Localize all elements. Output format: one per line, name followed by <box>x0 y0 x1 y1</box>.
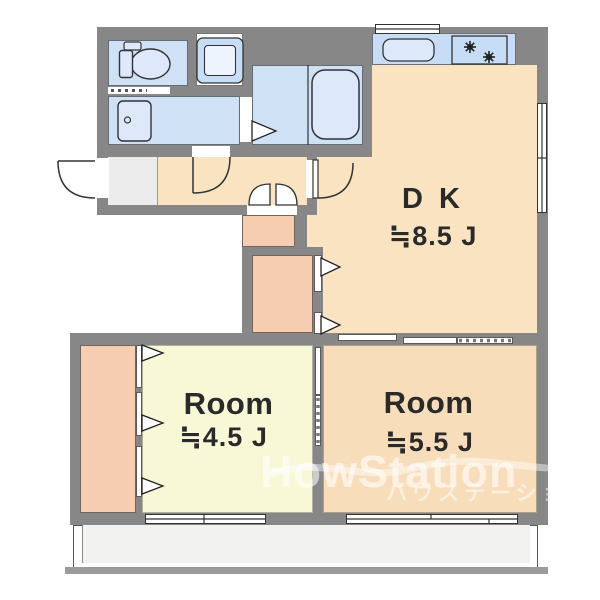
room55-label: Room <box>346 387 511 418</box>
room-partition-accordion <box>315 395 321 446</box>
bathroom-floor <box>252 65 363 145</box>
wall-segment <box>243 40 363 65</box>
dk-room-label: D K <box>353 185 513 214</box>
dk-room55-accordion-panel <box>457 337 513 344</box>
entrance-door-opening <box>96 158 109 198</box>
closet-door-opening <box>247 205 297 215</box>
dk-side-window <box>537 103 547 213</box>
toilet-accordion-door <box>108 87 170 94</box>
room-partition-opening <box>315 347 321 395</box>
dk-closet-door-slot <box>314 255 322 292</box>
entrance-door-swing <box>58 161 95 198</box>
watermark-subtitle: ハウステーション 中央 <box>386 477 600 507</box>
room45-balcony-window <box>145 514 266 524</box>
wall-segment <box>70 333 80 525</box>
room45-closet-floor <box>80 345 136 513</box>
kitchen-counter <box>372 33 516 65</box>
dk-door-opening <box>306 160 318 198</box>
kitchen-window <box>375 24 440 34</box>
toilet-room-floor <box>108 40 188 86</box>
wall-segment <box>97 145 372 157</box>
wall-segment <box>242 247 323 255</box>
wall-segment <box>188 40 196 86</box>
washroom-door-opening <box>192 146 230 157</box>
dk-floor <box>307 215 323 247</box>
dk-closet-floor <box>252 255 313 333</box>
washing-machine-space-floor <box>196 33 243 86</box>
dk-room-size: ≒8.5 J <box>353 223 513 250</box>
room45-label: Room <box>146 388 311 419</box>
entrance-genkan <box>108 157 158 205</box>
room55-balcony-window <box>346 514 518 524</box>
wall-segment <box>537 27 548 525</box>
hall-closet-floor <box>242 215 295 247</box>
wall-segment <box>363 27 372 157</box>
balcony-floor <box>82 525 530 563</box>
wall-segment <box>515 27 548 65</box>
balcony-railing <box>65 567 548 574</box>
wall-segment <box>242 255 252 336</box>
hallway-floor <box>158 157 307 205</box>
dk-closet-door-slot <box>314 312 322 334</box>
dk-room55-sliding-panel <box>338 334 397 341</box>
room45-closet-door-slot <box>136 345 142 388</box>
floor-plan: D K ≒8.5 J Room ≒4.5 J Room ≒5.5 J HowSt… <box>0 0 600 600</box>
bathroom-door-opening <box>240 97 252 142</box>
room45-closet-door-slot <box>136 446 142 497</box>
dk-room55-sliding-panel <box>403 337 457 344</box>
washroom-floor <box>108 96 240 145</box>
